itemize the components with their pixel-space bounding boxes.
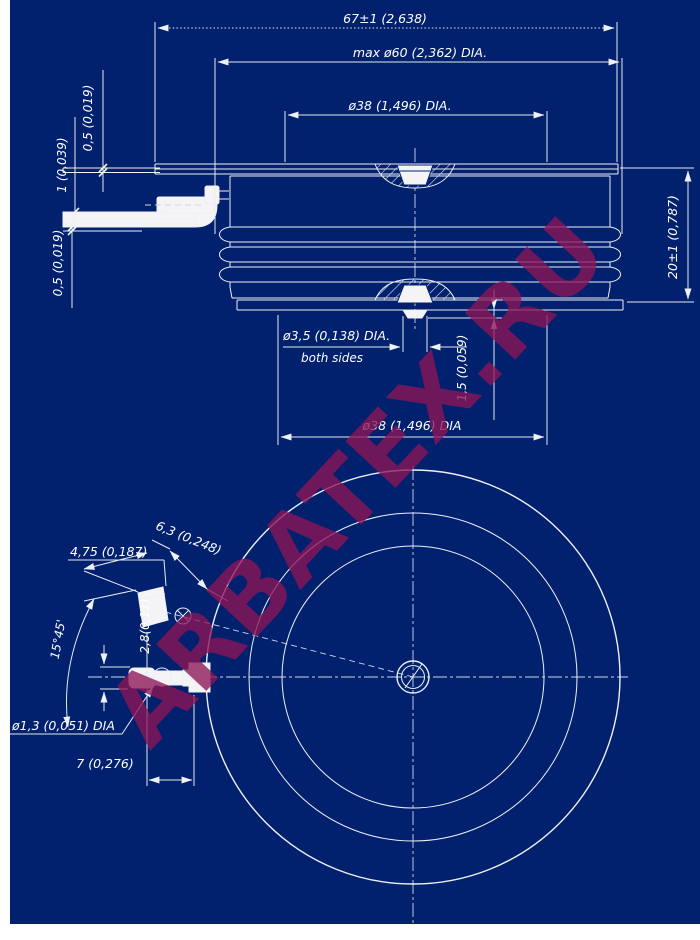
center-hole (397, 661, 429, 693)
dim-lug-thickness-label: 2,8(0,11) (138, 598, 152, 653)
dim-bottom-pole-dia-label: ø38 (1,496) DIA (362, 418, 462, 433)
dim-lug-length-label: 7 (0,276) (76, 756, 133, 771)
dim-lead-thickness-a-label: 0,5 (0,019) (81, 85, 95, 152)
blueprint-background (10, 0, 700, 924)
dim-center-recess-note: both sides (301, 351, 363, 365)
technical-drawing: 67±1 (2,638) max ø60 (2,362) DIA. ø38 (1… (0, 0, 700, 940)
dim-lead-thickness-c: 0,5 (0,019) (51, 222, 76, 308)
dim-overall-width-label: 67±1 (2,638) (343, 11, 427, 26)
dim-height-label: 20±1 (0,787) (665, 195, 680, 279)
dim-boss-height-label: 1,5 (0,059) (455, 335, 469, 402)
dim-housing-dia-label: max ø60 (2,362) DIA. (353, 45, 487, 60)
dim-top-pole-dia-label: ø38 (1,496) DIA. (347, 98, 451, 113)
dim-lead-hole-dia-label: ø1,3 (0,051) DIA (11, 718, 115, 733)
dim-center-recess-label: ø3,5 (0,138) DIA. (282, 328, 390, 343)
gate-lead-tab (205, 186, 219, 204)
dim-lead-thickness-b-label: 1 (0,039) (55, 137, 69, 192)
drawing-page: { "watermark": { "text": "ARBATEX.RU" },… (0, 0, 700, 940)
dim-lead-thickness-c-label: 0,5 (0,019) (51, 230, 65, 297)
dim-lug-width-label: 4,75 (0,187) (70, 544, 147, 559)
